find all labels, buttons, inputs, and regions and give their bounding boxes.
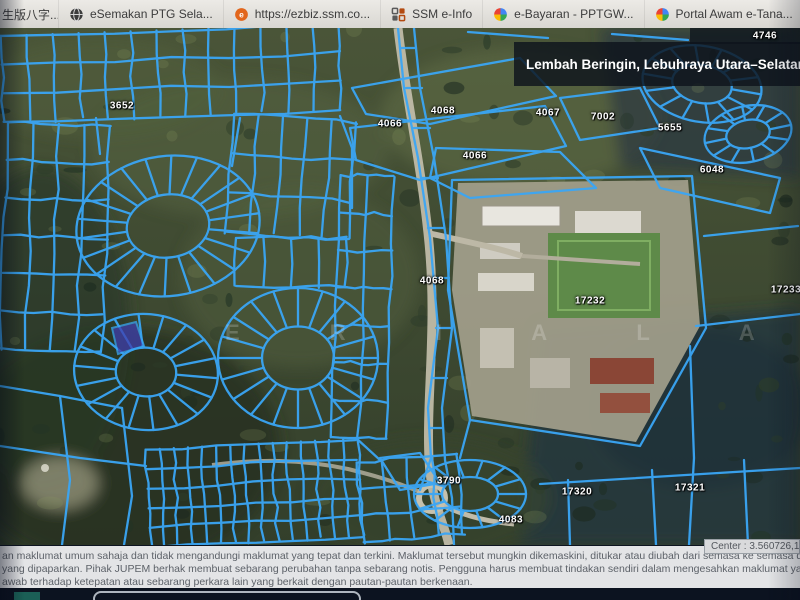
tab-label: https://ezbiz.ssm.co... — [255, 7, 370, 21]
parcel-label: 7002 — [591, 112, 615, 123]
red-roof-building — [600, 393, 650, 413]
colorful-globe-icon — [655, 7, 670, 22]
disclaimer-line: yang dipaparkan. Pihak JUPEM berhak memb… — [2, 563, 800, 575]
map-center-readout: Center : 3.560726,101. — [704, 539, 800, 554]
tab-label: SSM e-Info — [412, 7, 472, 21]
building — [478, 273, 534, 291]
tab-label: Portal Awam e-Tana... — [676, 7, 793, 21]
tab-label: 生版八字... — [2, 6, 59, 23]
parcel-label: 17320 — [562, 487, 592, 498]
colorful-globe-icon — [493, 7, 508, 22]
parcel-label: 4066 — [463, 151, 487, 162]
tab-ebayaran-pptg[interactable]: e-Bayaran - PPTGW... — [483, 0, 644, 28]
tab-chinese-page[interactable]: 生版八字... — [0, 0, 59, 28]
tab-label: e-Bayaran - PPTGW... — [514, 7, 633, 21]
tab-esemakan-ptg[interactable]: eSemakan PTG Sela... — [59, 0, 224, 28]
red-roof-building — [590, 358, 654, 384]
parcel-label: 6048 — [700, 165, 724, 176]
parcel-label: 17232 — [575, 296, 605, 307]
svg-text:e: e — [239, 9, 244, 19]
map-viewport[interactable]: E R I A L A Lembah Beringin, Lebuhraya U… — [0, 28, 800, 545]
parcel-label: 4746 — [753, 31, 777, 42]
building — [575, 211, 641, 233]
location-banner: Lembah Beringin, Lebuhraya Utara–Selatan… — [514, 42, 800, 86]
disclaimer-line: an maklumat umum sahaja dan tidak mengan… — [2, 550, 800, 562]
tab-ssm-einfo[interactable]: SSM e-Info — [381, 0, 483, 28]
parcel-label: 4067 — [536, 108, 560, 119]
parcel-label: 5655 — [658, 123, 682, 134]
map-watermark: E R I A L A — [225, 320, 797, 346]
building — [530, 358, 570, 388]
globe-icon — [69, 7, 84, 22]
parcel-label: 17233 — [771, 285, 800, 296]
parcel-label: 3790 — [437, 476, 461, 487]
screen-bezel — [0, 588, 800, 600]
rounded-outline — [93, 591, 361, 600]
parcel-label: 3652 — [110, 101, 134, 112]
parcel-label: 4068 — [431, 106, 455, 117]
orange-dot-icon: e — [234, 7, 249, 22]
parcel-label: 4083 — [499, 515, 523, 526]
browser-tab-strip: 生版八字... eSemakan PTG Sela... e https://e… — [0, 0, 800, 28]
tab-portal-awam-etanah[interactable]: Portal Awam e-Tana... — [645, 0, 800, 28]
squares-icon — [391, 7, 406, 22]
disclaimer-bar: an maklumat umum sahaja dan tidak mengan… — [0, 546, 800, 588]
tab-label: eSemakan PTG Sela... — [90, 7, 213, 21]
tab-ezbiz-ssm[interactable]: e https://ezbiz.ssm.co... — [224, 0, 381, 28]
parcel-label: 4068 — [420, 276, 444, 287]
disclaimer-line: awab terhadap ketepatan atau sebarang pe… — [2, 576, 800, 588]
parcel-label: 17321 — [675, 483, 705, 494]
building — [482, 206, 560, 226]
teal-chip — [14, 592, 40, 600]
parcel-label: 4066 — [378, 119, 402, 130]
